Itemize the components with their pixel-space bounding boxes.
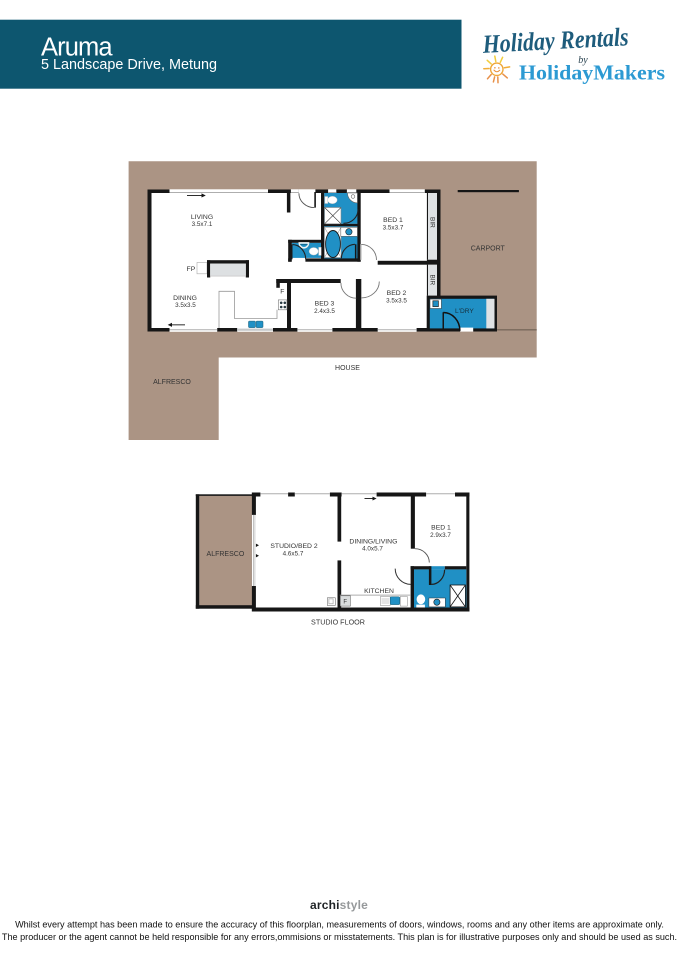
svg-text:2.4x3.5: 2.4x3.5 — [314, 308, 335, 315]
svg-text:BIR: BIR — [429, 274, 436, 285]
svg-text:FP: FP — [187, 266, 196, 273]
svg-text:ALFRESCO: ALFRESCO — [207, 551, 245, 558]
svg-text:5 Landscape Drive, Metung: 5 Landscape Drive, Metung — [41, 57, 217, 73]
svg-text:4.0x5.7: 4.0x5.7 — [362, 546, 383, 553]
svg-text:Whilst every attempt has been: Whilst every attempt has been made to en… — [15, 920, 664, 930]
svg-text:HolidayMakers: HolidayMakers — [519, 61, 665, 85]
svg-text:2.9x3.7: 2.9x3.7 — [430, 532, 451, 539]
svg-text:BED 1: BED 1 — [383, 217, 403, 224]
svg-text:Holiday Rentals: Holiday Rentals — [481, 22, 629, 59]
svg-text:L'DRY: L'DRY — [455, 308, 474, 315]
svg-text:F: F — [280, 288, 284, 295]
svg-text:KITCHEN: KITCHEN — [364, 588, 394, 595]
svg-text:DINING: DINING — [173, 295, 197, 302]
svg-text:BIR: BIR — [429, 217, 436, 228]
svg-text:F: F — [343, 600, 347, 606]
svg-text:3.5x3.5: 3.5x3.5 — [386, 298, 407, 305]
svg-text:3.5x3.5: 3.5x3.5 — [175, 302, 196, 309]
svg-text:4.6x5.7: 4.6x5.7 — [283, 550, 304, 557]
svg-text:3.5x7.1: 3.5x7.1 — [192, 221, 213, 228]
svg-text:archistyle: archistyle — [310, 898, 368, 912]
svg-text:3.5x3.7: 3.5x3.7 — [383, 225, 404, 232]
svg-text:BED 1: BED 1 — [431, 525, 451, 532]
svg-text:LIVING: LIVING — [191, 214, 213, 221]
svg-text:STUDIO FLOOR: STUDIO FLOOR — [311, 618, 365, 627]
svg-text:ALFRESCO: ALFRESCO — [153, 379, 191, 386]
svg-text:STUDIO/BED 2: STUDIO/BED 2 — [270, 543, 317, 550]
svg-text:CARPORT: CARPORT — [471, 245, 506, 252]
svg-text:DINING/LIVING: DINING/LIVING — [349, 539, 397, 546]
svg-text:BED 2: BED 2 — [387, 290, 407, 297]
svg-text:BED 3: BED 3 — [315, 301, 335, 308]
svg-text:HOUSE: HOUSE — [335, 365, 360, 372]
svg-text:The producer or the agent cann: The producer or the agent cannot be held… — [2, 932, 677, 942]
